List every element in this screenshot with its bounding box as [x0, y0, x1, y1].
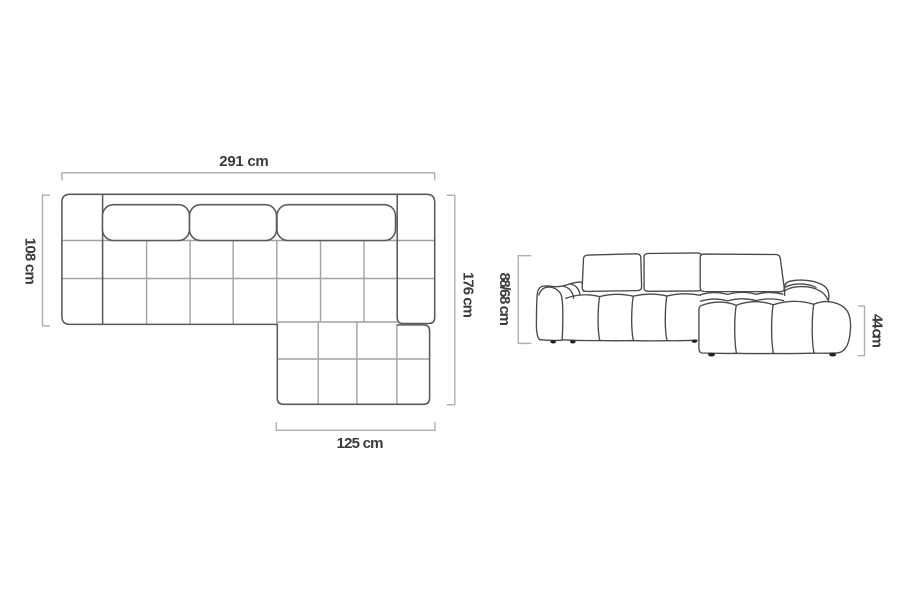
svg-text:176 cm: 176 cm [460, 272, 477, 318]
svg-text:125 cm: 125 cm [337, 435, 384, 452]
svg-text:291 cm: 291 cm [219, 153, 269, 170]
svg-text:88/68 cm: 88/68 cm [496, 272, 513, 326]
svg-text:108 cm: 108 cm [22, 238, 39, 285]
svg-text:44 cm: 44 cm [869, 314, 886, 348]
